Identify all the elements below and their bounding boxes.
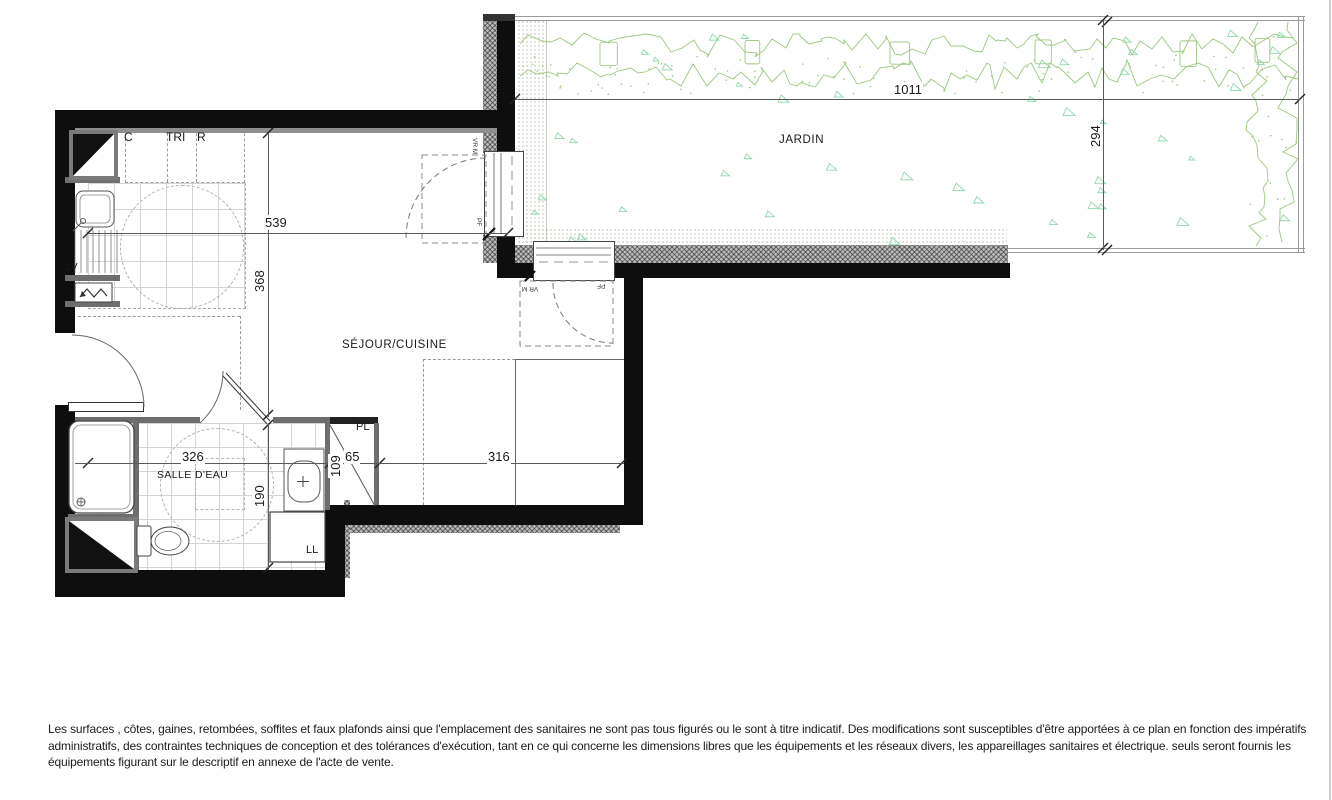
hedge-dot (643, 92, 645, 94)
hedge-dot (1285, 147, 1287, 149)
disclaimer-line-3: équipements figurant sur le descriptif e… (48, 754, 1306, 771)
grass-triangle (742, 34, 749, 38)
closet-top-partition (330, 417, 378, 424)
hedge-dot (833, 76, 835, 78)
front-window-swing-arc (553, 283, 613, 343)
hedge-dot (559, 87, 561, 89)
hedge-squiggle (1278, 22, 1298, 242)
hedge-dot (680, 89, 682, 91)
label-washing-machine: LL (306, 544, 318, 556)
grass-triangle (1257, 60, 1264, 65)
grass-triangle (555, 133, 564, 139)
grass-triangle (1050, 219, 1058, 224)
living-corner-outline (515, 359, 625, 506)
label-french-door-front: PF (597, 282, 605, 289)
grass-triangle (619, 207, 626, 212)
hedge-dot (1273, 36, 1275, 38)
hedge-dot (843, 78, 845, 80)
grass-triangle (1277, 32, 1285, 37)
grass-triangle (721, 170, 730, 176)
dim-line-190 (268, 423, 269, 570)
hedge-dot (870, 86, 872, 88)
kitchen-separator-3 (65, 301, 120, 307)
label-shutter-side: VR M (471, 138, 478, 154)
grass-triangle (827, 164, 837, 171)
grass-triangle (1120, 69, 1129, 75)
hedge-dot (549, 76, 551, 78)
hedge-dot (1225, 57, 1227, 59)
hedge-dot (590, 90, 592, 92)
kitchen-separator-2 (65, 275, 120, 281)
grass-triangle (1129, 49, 1138, 54)
garden-wall-top-cap (483, 14, 515, 21)
hedge-dot (1163, 67, 1165, 69)
hedge-dot (726, 79, 728, 81)
hedge-dot (1290, 89, 1292, 91)
grass-triangle (1088, 232, 1096, 237)
hedge-dot (1162, 81, 1164, 83)
hedge-dot (1056, 67, 1058, 69)
hedge-dot (1041, 79, 1043, 81)
hedge-dot (1251, 136, 1253, 138)
room-label-bathroom: SALLE D'EAU (157, 469, 228, 481)
hedge-dot (964, 77, 966, 79)
bathroom-door-arc (200, 371, 223, 423)
hedge-dot (1270, 182, 1272, 184)
grass-triangle (570, 138, 577, 143)
hedge-shrub (600, 42, 617, 65)
dim-living-width: 316 (487, 449, 511, 464)
hedge-dot (733, 77, 735, 79)
hedge-dot (827, 58, 829, 60)
hedge-dot (802, 63, 804, 65)
garden-fence-top-inner (515, 20, 1305, 21)
facade-wall-left-segment (497, 263, 535, 278)
hedge-dot (954, 93, 956, 95)
hedge-dot (1277, 198, 1279, 200)
dim-closet-width: 65 (344, 449, 360, 464)
hedge-dot (1215, 68, 1217, 70)
hedge-dot (598, 84, 600, 86)
hedge-dot (1001, 92, 1003, 94)
garden-fence-right-outer (1303, 16, 1304, 252)
label-sorting: TRI (166, 130, 185, 144)
grass-triangle (1270, 47, 1280, 54)
grass-triangle (1189, 156, 1195, 160)
hedge-dot (727, 70, 729, 72)
hedge-dot (1261, 69, 1263, 71)
garden-fence-top-outer (515, 16, 1305, 17)
room-label-living-kitchen: SÉJOUR/CUISINE (342, 339, 447, 351)
grass-triangle (1088, 202, 1098, 209)
hedge-dot (1243, 67, 1245, 69)
kitchen-separator-1 (65, 177, 120, 183)
hedge-dot (690, 93, 692, 95)
grass-triangle (1228, 30, 1238, 36)
dim-bathroom-depth: 190 (252, 484, 267, 508)
hedge-dot (1213, 56, 1215, 58)
grass-triangle (1158, 135, 1167, 141)
living-right-wall (624, 265, 643, 525)
hedge-dot (754, 77, 756, 79)
hedge-dot (601, 87, 603, 89)
hedge-dot (1262, 95, 1264, 97)
hedge-dot (1176, 84, 1178, 86)
hedge-shrub (745, 40, 760, 63)
side-window-swing-arc (406, 158, 486, 238)
hedge-dot (1155, 65, 1157, 67)
grass-triangle (834, 91, 843, 97)
hedge-dot (1270, 135, 1272, 137)
label-dishwasher: LV (66, 262, 78, 273)
dim-line-368 (268, 133, 269, 417)
hedge-dot (658, 63, 660, 65)
grass-triangle (901, 172, 913, 180)
grass-triangle (662, 64, 672, 70)
grass-triangle (974, 197, 984, 203)
hedge-dot (873, 78, 875, 80)
hedge-dot (1174, 59, 1176, 61)
hedge-dot (1255, 46, 1257, 48)
hedge-dot (991, 75, 993, 77)
grass-triangle (744, 154, 751, 159)
garden-french-window-front (533, 241, 615, 281)
hedge-dot (809, 82, 811, 84)
hedge-dot (966, 70, 968, 72)
closet-right-partition (374, 423, 379, 505)
disclaimer-text: Les surfaces , côtes, gaines, retombées,… (48, 721, 1306, 771)
hedge-dot (661, 63, 663, 65)
left-wall-lower (55, 405, 75, 597)
hedge-dot (1051, 78, 1053, 80)
grass-triangle (1123, 37, 1131, 42)
grass-triangle (953, 183, 964, 190)
kitchen-duct-triangle (73, 134, 114, 176)
hedge-dot (621, 83, 623, 85)
dim-living-depth: 368 (252, 269, 267, 293)
kitchen-sink-tap (81, 219, 86, 224)
hedge-dot (1266, 235, 1268, 237)
grass-triangle (710, 34, 719, 40)
hedge-dot (808, 85, 810, 87)
side-window-swing-box (422, 155, 486, 243)
kitchen-turning-circle (120, 185, 244, 309)
left-wall-upper (55, 110, 75, 333)
hedge-squiggle (520, 33, 1293, 57)
hedge-dot (696, 56, 698, 58)
grass-triangle (1230, 84, 1241, 91)
hedge-shrub (1255, 39, 1270, 63)
hedge-shrub (1180, 41, 1197, 67)
hedge-dot (672, 75, 674, 77)
grass-triangle (1098, 188, 1106, 193)
living-bottom-wall (330, 505, 643, 525)
grass-triangle (1063, 108, 1075, 116)
grass-triangle (653, 57, 659, 61)
hedge-dot (569, 68, 571, 70)
entry-zone-dashed-top (78, 316, 240, 317)
grass-triangle (1060, 59, 1069, 65)
hedge-dot (1092, 58, 1094, 60)
facade-wall-hatch-right (613, 245, 1008, 263)
garden-left-wall-lower (497, 233, 515, 263)
hedge-dot (1004, 62, 1006, 64)
dim-line-1011 (515, 99, 1300, 100)
hedge-dot (1175, 55, 1177, 57)
hedge-dot (1283, 198, 1285, 200)
dim-duct-depth: 109 (328, 454, 343, 478)
top-wall-liner (75, 128, 497, 133)
label-shutter-front: VR M (522, 285, 538, 292)
hedge-dot (929, 80, 931, 82)
bathroom-door-leaf-a (226, 373, 270, 421)
hedge-dot (1043, 73, 1045, 75)
label-fridge: R (197, 130, 206, 144)
dim-line-294 (1103, 20, 1104, 250)
garden-left-wall-hatch-lower (483, 233, 497, 263)
bathroom-bottom-wall (55, 570, 330, 597)
living-zone-dashed-top (423, 359, 515, 360)
hedge-dot (1027, 66, 1029, 68)
dim-garden-width: 1011 (893, 82, 923, 97)
grass-triangle (765, 211, 774, 217)
hedge-dot (607, 93, 609, 95)
bathroom-top-partition-right (273, 417, 330, 423)
hedge-dot (1281, 139, 1283, 141)
hedge-dot (963, 76, 965, 78)
hedge-dot (610, 67, 612, 69)
hedge-dot (740, 59, 742, 61)
entrance-door-arc (72, 335, 144, 407)
garden-fence-bottom-inner (1005, 248, 1305, 249)
label-french-door-side: PF (475, 218, 482, 226)
hedge-dot (1142, 92, 1144, 94)
disclaimer-line-2: administratifs, des contraintes techniqu… (48, 738, 1306, 755)
hedge-dot (1080, 57, 1082, 59)
grass-triangle (1095, 177, 1106, 184)
hedge-dot (577, 93, 579, 95)
top-wall (55, 110, 497, 128)
grass-triangle (736, 82, 742, 86)
hedge-squiggle (1246, 22, 1268, 246)
hedge-dot (1034, 59, 1036, 61)
hedge-dot (614, 74, 616, 76)
garden-french-window-side (484, 151, 524, 237)
entry-zone-dashed-right (240, 316, 241, 410)
dim-line-539 (88, 233, 508, 234)
hedge-dot (630, 85, 632, 87)
scan-edge (1329, 0, 1331, 800)
kitchen-duct-box (71, 132, 116, 178)
dim-garden-depth: 294 (1088, 124, 1103, 148)
hedge-dot (859, 66, 861, 68)
hedge-dot (648, 68, 650, 70)
hedge-dot (1038, 90, 1040, 92)
hedge-dot (715, 68, 717, 70)
label-cupboard: C (124, 130, 133, 144)
hedge-dot (1128, 63, 1130, 65)
facade-wall-right-segment (613, 263, 1010, 278)
hedge-dot (853, 93, 855, 95)
disclaimer-line-1: Les surfaces , côtes, gaines, retombées,… (48, 721, 1306, 738)
hedge-dot (671, 65, 673, 67)
grass-triangle (641, 50, 648, 55)
living-zone-dashed-left (423, 359, 424, 505)
hedge-dot (1250, 203, 1252, 205)
hedge-dot (975, 81, 977, 83)
bathroom-door-leaf-b (223, 376, 267, 424)
hedge-dot (754, 70, 756, 72)
grass-triangle (1177, 218, 1189, 226)
hedge-dot (1093, 86, 1095, 88)
room-label-garden: JARDIN (779, 134, 824, 146)
floor-plan-canvas: JARDIN SÉJOUR/CUISINE SALLE D'EAU C TRI … (0, 0, 1332, 800)
label-closet: PL (356, 421, 369, 433)
hedge-dot (1227, 85, 1229, 87)
dim-bathroom-width: 326 (181, 449, 205, 464)
dim-kitchen-width: 539 (264, 215, 288, 230)
hedge-dot (1172, 81, 1174, 83)
electrical-panel-arrow (80, 291, 86, 297)
hedge-dot (550, 64, 552, 66)
hedge-dot (616, 68, 618, 70)
hedge-dot (1268, 116, 1270, 118)
shower-duct-separator (68, 514, 133, 520)
hedge-dot (1266, 76, 1268, 78)
grass-triangle (1280, 215, 1289, 221)
hedge-dot (749, 87, 751, 89)
shower-column-partition (133, 423, 139, 570)
hedge-dot (1204, 80, 1206, 82)
hedge-dot (648, 83, 650, 85)
hedge-shrub (1035, 40, 1051, 64)
hedge-dot (1129, 66, 1131, 68)
living-bottom-wall-hatch (345, 525, 620, 533)
hedge-dot (560, 85, 562, 87)
grass-triangle (1038, 60, 1050, 68)
hedge-dot (817, 75, 819, 77)
hedge-dot (1258, 140, 1260, 142)
garden-fence-right-inner (1298, 16, 1299, 252)
garden-left-wall-upper (497, 15, 515, 153)
garden-fence-bottom-outer (1005, 252, 1305, 253)
entrance-door-leaf (68, 402, 144, 412)
hedge-dot (1068, 71, 1070, 73)
hedge-shrub (890, 42, 910, 64)
